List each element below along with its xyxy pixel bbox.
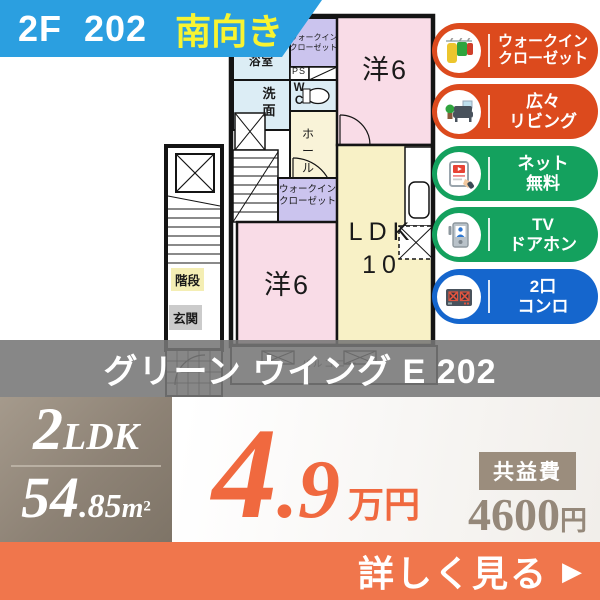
layout-type: LDK: [63, 416, 139, 458]
feature-line2: リビング: [492, 112, 594, 131]
rent-unit: 万円: [348, 476, 420, 528]
fee-amount: 4600: [468, 489, 560, 540]
closet-lower-line1: ウォークイン: [278, 184, 337, 196]
fee-badge: 共益費: [479, 452, 576, 490]
feature-two-burner-stove: 2口 コンロ: [432, 269, 598, 324]
feature-line1: TV: [492, 215, 594, 234]
rent-int: 4: [212, 409, 277, 539]
details-button[interactable]: 詳しく見る ▶: [0, 542, 600, 600]
feature-line1: ウォークイン: [492, 34, 594, 51]
arrow-right-icon: ▶: [562, 556, 582, 587]
header-banner: 2F 202 南向き: [0, 0, 322, 57]
area-dec: .85: [79, 488, 122, 525]
room-label-entrance: 玄関: [169, 305, 202, 330]
listing-card[interactable]: 浴室 洗面 WC PS ウォークイン クローゼット ホール 洋6 ウォークイン …: [0, 0, 600, 600]
ldk-line1: LDK: [337, 216, 427, 249]
pill-divider: [488, 218, 490, 251]
area-sup: 2: [143, 499, 151, 515]
room-label-washroom: 洗面: [261, 86, 277, 120]
kitchen-sink: [409, 182, 429, 218]
doorphone-icon: [437, 213, 481, 257]
room-label-western-bottom: 洋6: [237, 263, 337, 302]
feature-line2: ドアホン: [492, 235, 594, 254]
rent-price: 4.9万円: [212, 397, 420, 539]
room-label-wc: WC: [293, 82, 305, 108]
pill-divider: [488, 280, 490, 313]
details-button-label: 詳しく見る: [358, 545, 548, 597]
closet-lower-line2: クローゼット: [278, 196, 337, 208]
fee-unit: 円: [560, 506, 587, 536]
summary-section: 2LDK 54.85m2 4.9万円 共益費 4600円: [0, 397, 600, 542]
feature-label: ネット 無料: [492, 154, 594, 192]
pill-divider: [488, 34, 490, 67]
property-name: グリーン ウイング E 202: [103, 344, 496, 393]
closet-upper-line2: クローゼット: [288, 43, 339, 53]
ldk-line2: 10: [337, 249, 427, 282]
area-spec: 54.85m2: [21, 469, 151, 527]
feature-line2: クローゼット: [492, 51, 594, 68]
room-label-closet-lower: ウォークイン クローゼット: [278, 184, 337, 209]
layout-spec: 2LDK: [33, 399, 139, 459]
feature-line1: ネット: [492, 154, 594, 173]
area-int: 54: [21, 465, 79, 530]
fee-value: 4600円: [455, 492, 600, 538]
feature-spacious-living: 広々 リビング: [432, 84, 598, 139]
room-label-ps: PS: [292, 66, 306, 76]
room-label-western-top: 洋6: [337, 48, 433, 87]
feature-walkin-closet: ウォークイン クローゼット: [432, 23, 598, 78]
feature-label: ウォークイン クローゼット: [492, 34, 594, 68]
feature-line1: 2口: [492, 277, 594, 296]
room-label-ldk: LDK 10: [337, 216, 427, 281]
feature-label: TV ドアホン: [492, 215, 594, 253]
feature-line1: 広々: [492, 92, 594, 111]
area-unit: m: [122, 493, 144, 524]
sofa-icon: [437, 90, 481, 134]
feature-tv-doorphone: TV ドアホン: [432, 207, 598, 262]
feature-line2: 無料: [492, 174, 594, 193]
stove-icon: [437, 275, 481, 319]
room-label-stairs: 階段: [171, 268, 204, 291]
unit-number: 2F 202: [18, 8, 147, 50]
rent-dec: .9: [277, 448, 340, 532]
tablet-icon: [437, 152, 481, 196]
layout-number: 2: [33, 396, 63, 462]
feature-label: 2口 コンロ: [492, 277, 594, 315]
pill-divider: [488, 95, 490, 128]
feature-free-internet: ネット 無料: [432, 146, 598, 201]
room-label-hall: ホール: [301, 126, 315, 176]
walkin-closet-icon: [437, 29, 481, 73]
spec-box: 2LDK 54.85m2: [0, 397, 172, 542]
facing-direction: 南向き: [175, 3, 283, 55]
common-fee: 共益費 4600円: [455, 452, 600, 538]
property-name-band: グリーン ウイング E 202: [0, 340, 600, 397]
pill-divider: [488, 157, 490, 190]
feature-label: 広々 リビング: [492, 92, 594, 130]
feature-line2: コンロ: [492, 297, 594, 316]
